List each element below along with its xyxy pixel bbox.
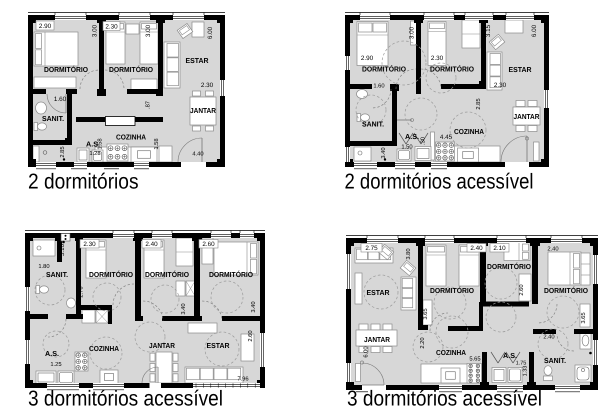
svg-text:1.60: 1.60 — [373, 83, 384, 90]
svg-text:2.60: 2.60 — [202, 241, 215, 248]
svg-text:6.00: 6.00 — [363, 346, 370, 357]
svg-text:2.10: 2.10 — [493, 245, 506, 252]
svg-text:1.60: 1.60 — [54, 96, 67, 103]
svg-text:5.65: 5.65 — [469, 356, 480, 363]
svg-text:2.60: 2.60 — [247, 330, 254, 341]
svg-text:DORMITÓRIO: DORMITÓRIO — [145, 270, 189, 279]
svg-text:2.90: 2.90 — [361, 55, 374, 62]
svg-text:COZINHA: COZINHA — [116, 133, 146, 142]
svg-text:3 dormitórios acessível: 3 dormitórios acessível — [28, 387, 223, 410]
svg-text:3.65: 3.65 — [422, 308, 429, 319]
svg-text:1.33: 1.33 — [523, 366, 529, 377]
svg-text:3.40: 3.40 — [180, 303, 187, 314]
svg-text:2.20: 2.20 — [529, 366, 535, 377]
svg-text:SANIT.: SANIT. — [362, 120, 384, 129]
svg-text:DORMITÓRIO: DORMITÓRIO — [487, 262, 531, 271]
svg-text:A.S.: A.S. — [405, 132, 419, 141]
svg-text:3.15: 3.15 — [485, 24, 492, 37]
svg-text:3.65: 3.65 — [580, 312, 587, 323]
svg-text:DORMITÓRIO: DORMITÓRIO — [209, 270, 253, 279]
svg-text:2.20: 2.20 — [419, 337, 426, 348]
svg-text:JANTAR: JANTAR — [514, 112, 541, 121]
svg-text:DORMITÓRIO: DORMITÓRIO — [430, 65, 474, 74]
svg-text:ESTAR: ESTAR — [186, 56, 210, 65]
svg-text:2.40: 2.40 — [470, 245, 483, 252]
svg-text:DORMITÓRIO: DORMITÓRIO — [430, 286, 474, 295]
svg-text:DORMITÓRIO: DORMITÓRIO — [89, 270, 133, 279]
svg-text:DORMITÓRIO: DORMITÓRIO — [544, 286, 588, 295]
svg-text:2.85: 2.85 — [475, 98, 482, 109]
svg-text:3.40: 3.40 — [380, 147, 387, 158]
svg-text:1.58: 1.58 — [153, 138, 160, 149]
svg-text:DORMITÓRIO: DORMITÓRIO — [44, 65, 88, 74]
svg-text:JANTAR: JANTAR — [364, 335, 391, 344]
svg-text:2.75: 2.75 — [365, 245, 378, 252]
svg-text:4.45: 4.45 — [440, 134, 453, 141]
svg-text:2.30: 2.30 — [83, 241, 96, 248]
svg-text:.30: .30 — [420, 137, 427, 145]
svg-text:A.S.: A.S. — [503, 351, 517, 360]
svg-text:3.00: 3.00 — [92, 24, 99, 37]
svg-text:6.00: 6.00 — [531, 24, 538, 37]
svg-text:COZINHA: COZINHA — [454, 127, 484, 136]
svg-text:DORMITÓRIO: DORMITÓRIO — [362, 65, 406, 74]
svg-text:2.30: 2.30 — [494, 82, 507, 89]
svg-text:1.28: 1.28 — [89, 150, 100, 157]
svg-text:SANIT.: SANIT. — [544, 356, 566, 365]
svg-text:DORMITÓRIO: DORMITÓRIO — [109, 65, 153, 74]
svg-text:2.90: 2.90 — [39, 23, 52, 30]
svg-text:2.40: 2.40 — [543, 334, 554, 341]
svg-text:7.96: 7.96 — [237, 376, 248, 383]
svg-text:2.30: 2.30 — [201, 82, 214, 89]
svg-text:3.80: 3.80 — [405, 248, 412, 259]
svg-text:1.80: 1.80 — [38, 263, 49, 270]
svg-text:JANTAR: JANTAR — [149, 341, 176, 350]
svg-text:3 dormitórios acessível: 3 dormitórios acessível — [347, 387, 542, 410]
svg-text:.87: .87 — [145, 101, 152, 109]
svg-text:2 dormitórios acessível: 2 dormitórios acessível — [345, 170, 534, 194]
svg-text:3.10: 3.10 — [59, 243, 66, 256]
svg-text:A.S.: A.S. — [45, 349, 59, 358]
svg-text:2.40: 2.40 — [547, 246, 558, 253]
svg-text:1.25: 1.25 — [50, 361, 61, 368]
svg-text:ESTAR: ESTAR — [207, 341, 231, 350]
svg-text:JANTAR: JANTAR — [190, 106, 217, 115]
svg-text:1.75: 1.75 — [516, 361, 527, 367]
svg-text:4.40: 4.40 — [192, 151, 203, 158]
svg-text:SANIT.: SANIT. — [46, 270, 68, 279]
svg-text:3.40: 3.40 — [250, 301, 257, 312]
svg-text:2 dormitórios: 2 dormitórios — [28, 170, 139, 194]
svg-text:2.30: 2.30 — [431, 55, 444, 62]
svg-text:COZINHA: COZINHA — [436, 348, 466, 357]
svg-text:ESTAR: ESTAR — [509, 65, 533, 74]
svg-text:3.00: 3.00 — [145, 24, 152, 37]
svg-text:2.70: 2.70 — [78, 286, 85, 297]
svg-text:2.40: 2.40 — [145, 241, 158, 248]
svg-text:ESTAR: ESTAR — [367, 288, 391, 297]
svg-text:1.50: 1.50 — [401, 144, 412, 151]
svg-text:1.58: 1.58 — [97, 138, 104, 149]
svg-text:SANIT.: SANIT. — [42, 114, 64, 123]
svg-text:3.00: 3.00 — [409, 26, 416, 39]
svg-text:6.00: 6.00 — [207, 26, 214, 39]
svg-text:2.30: 2.30 — [105, 23, 118, 30]
svg-text:2.85: 2.85 — [59, 146, 66, 157]
svg-text:COZINHA: COZINHA — [89, 344, 119, 353]
svg-text:2.60: 2.60 — [518, 284, 525, 295]
